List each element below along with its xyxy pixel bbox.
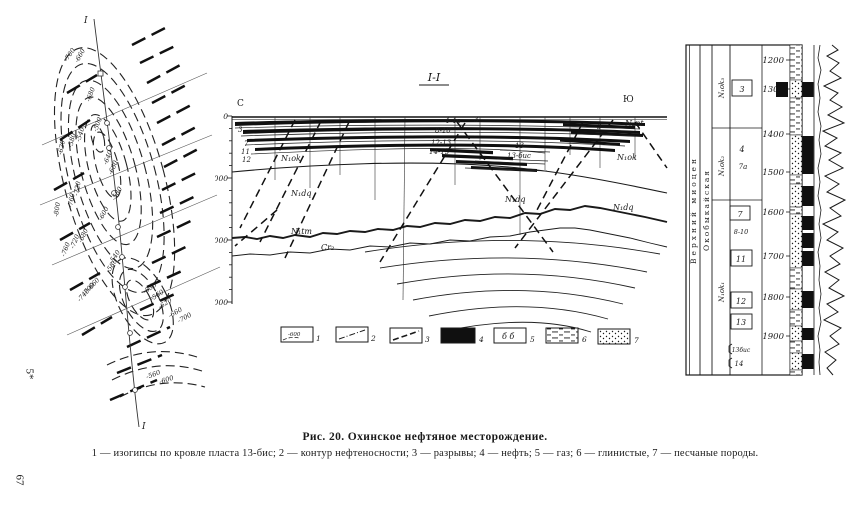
contour-label: -680 xyxy=(84,86,97,102)
n1tm-label: N₁tm xyxy=(290,227,312,236)
svg-text:14-15: 14-15 xyxy=(429,148,450,156)
contour-label: -620 xyxy=(56,139,67,155)
n1dq-left-label: N₁dq xyxy=(290,189,311,198)
svg-text:3000: 3000 xyxy=(215,298,228,307)
figure-caption-title: Рис. 20. Охинское нефтяное месторождение… xyxy=(0,431,850,443)
depth-axis-labels: 0 1000 2000 3000 xyxy=(215,112,228,307)
svg-text:7: 7 xyxy=(634,336,639,345)
section-title: I-I xyxy=(427,71,441,84)
svg-text:7: 7 xyxy=(737,210,743,219)
svg-text:4: 4 xyxy=(738,145,744,154)
svg-text:14: 14 xyxy=(735,360,744,368)
legend-isohypse-value: -600 xyxy=(288,332,301,338)
figure-caption-legend: 1 — изогипсы по кровле пласта 13-бис; 2 … xyxy=(8,448,842,459)
svg-text:3: 3 xyxy=(597,123,602,131)
svg-text:13: 13 xyxy=(515,142,524,150)
svg-text:7: 7 xyxy=(244,140,249,148)
bed-cells: 3 4 7а 7 8-10 11 12 13 13бис 14 xyxy=(729,80,752,368)
legend-row: -600 1 2 3 4 б б 5 xyxy=(281,327,639,345)
map-fault-segments xyxy=(54,27,202,400)
svg-text:1500: 1500 xyxy=(762,168,784,178)
cross-section: I-I С Ю 0 1000 2000 3000 xyxy=(215,60,670,360)
legend-item: 6 xyxy=(546,328,587,344)
contour-label: -580 xyxy=(110,185,124,202)
page-number: 67 xyxy=(14,475,26,486)
svg-text:0: 0 xyxy=(223,112,228,121)
legend-item: 4 xyxy=(441,328,484,344)
svg-text:4: 4 xyxy=(478,335,484,344)
n1ok-left-label: N₁ok xyxy=(280,154,301,163)
svg-text:1400: 1400 xyxy=(762,130,784,140)
legend-item: 2 xyxy=(336,327,376,343)
oil-marks-track xyxy=(776,82,788,97)
n1ok-right-label: N₁ok xyxy=(616,153,637,162)
svg-text:2: 2 xyxy=(370,334,376,343)
svg-text:11: 11 xyxy=(241,148,250,156)
stage-label: Верхний миоцен xyxy=(689,156,698,264)
contour-label: -500 xyxy=(91,116,104,132)
depth-scale: 1200 1300 1400 1500 1600 1700 1800 1900 xyxy=(762,56,790,342)
n1dq-center-label: N₁dq xyxy=(504,195,525,204)
north-label: С xyxy=(237,99,244,109)
oil-marks xyxy=(803,82,814,369)
lithology-track xyxy=(790,45,802,375)
legend-item: -600 1 xyxy=(281,327,321,343)
svg-text:12-13: 12-13 xyxy=(431,139,452,147)
svg-text:13бис: 13бис xyxy=(732,347,751,354)
legend-item: б б 5 xyxy=(494,328,535,344)
svg-text:1700: 1700 xyxy=(762,252,784,262)
depth-axis xyxy=(227,116,232,304)
legend-item: 7 xyxy=(598,329,639,345)
svg-text:8-10: 8-10 xyxy=(435,127,451,135)
svg-text:12: 12 xyxy=(736,297,746,306)
svg-text:5: 5 xyxy=(530,335,535,344)
contour-label: -760 xyxy=(59,241,72,257)
unit-labels: N₁ok₃ N₁ok₂ N₁ok₁ xyxy=(718,78,726,303)
section-endpoint-label-top: I xyxy=(83,16,88,26)
svg-text:13: 13 xyxy=(736,318,746,327)
svg-text:13-бис: 13-бис xyxy=(507,152,531,160)
well-log-curve xyxy=(818,45,845,375)
svg-text:N₁ok₁: N₁ok₁ xyxy=(718,282,726,303)
svg-text:1200: 1200 xyxy=(762,56,784,66)
svg-text:1000: 1000 xyxy=(215,174,228,183)
svg-text:2000: 2000 xyxy=(215,236,228,245)
svg-text:1900: 1900 xyxy=(762,332,784,342)
svg-text:3: 3 xyxy=(474,116,479,124)
svg-text:6: 6 xyxy=(582,335,587,344)
contour-label: -800 xyxy=(52,202,62,218)
svg-text:11: 11 xyxy=(736,255,746,264)
svg-text:3: 3 xyxy=(425,335,430,344)
figure-page: I I -700-660-680-620-580-540-500-640-680… xyxy=(0,0,850,515)
svg-text:N₁ok₃: N₁ok₃ xyxy=(718,78,726,99)
n2nt-label: N₂nt xyxy=(624,119,644,128)
svg-text:N₁ok₂: N₁ok₂ xyxy=(718,156,726,177)
svg-text:3: 3 xyxy=(739,85,744,94)
contour-label: -760 xyxy=(66,193,76,209)
stratigraphic-column: Верхний миоцен Окобыкайская N₁ok₃ N₁ok₂ … xyxy=(680,40,850,385)
svg-text:12: 12 xyxy=(242,156,251,164)
cr2-label: Cr₂ xyxy=(321,243,334,252)
suite-label: Окобыкайская xyxy=(702,169,711,251)
svg-text:1800: 1800 xyxy=(762,293,784,303)
structure-contour-map: I I -700-660-680-620-580-540-500-640-680… xyxy=(12,5,222,435)
legend-item: 3 xyxy=(390,328,430,344)
svg-text:3: 3 xyxy=(238,126,243,134)
legend-gas-symbol: б б xyxy=(502,332,514,341)
svg-text:4-4а: 4-4а xyxy=(444,117,460,125)
svg-text:1600: 1600 xyxy=(762,208,784,218)
svg-text:7а: 7а xyxy=(739,163,748,171)
cretaceous-arcs xyxy=(365,240,660,332)
svg-text:1: 1 xyxy=(316,334,321,343)
south-label: Ю xyxy=(623,95,634,105)
page-signature: 5* xyxy=(24,369,36,380)
n1dq-right-label: N₁dq xyxy=(612,203,633,212)
svg-text:8-10: 8-10 xyxy=(734,228,749,236)
